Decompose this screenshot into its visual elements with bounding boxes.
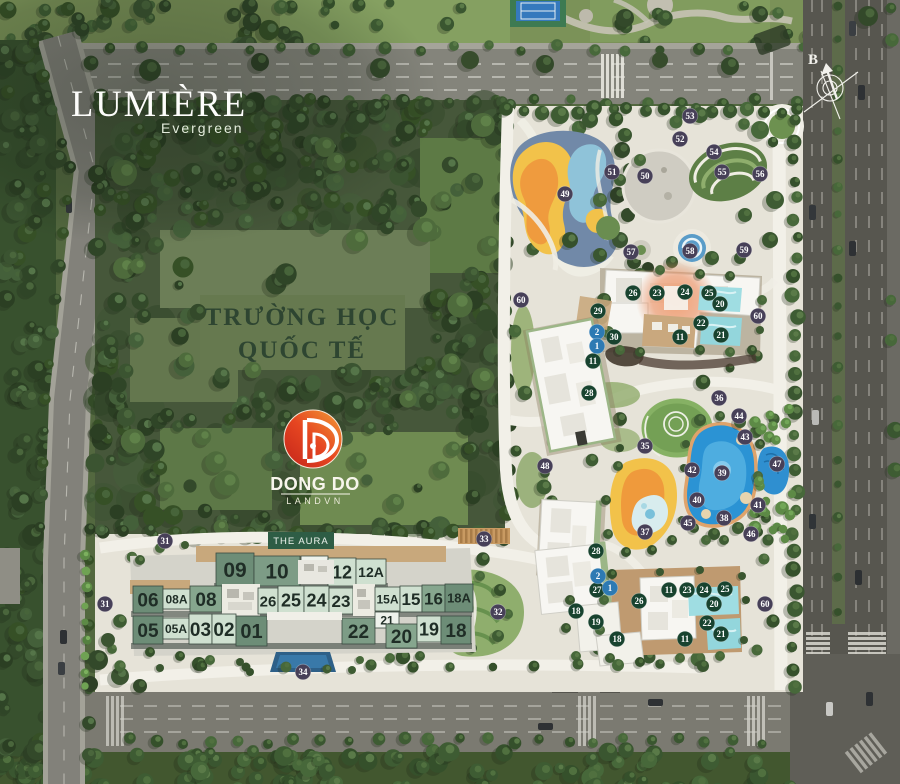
svg-text:21: 21	[717, 629, 727, 639]
svg-text:08: 08	[195, 590, 216, 611]
svg-text:39: 39	[718, 468, 728, 478]
svg-text:60: 60	[761, 599, 771, 609]
svg-text:15A: 15A	[376, 592, 398, 606]
svg-text:53: 53	[686, 111, 696, 121]
svg-text:48: 48	[541, 461, 551, 471]
svg-text:DONG DO: DONG DO	[270, 474, 360, 494]
svg-text:01: 01	[240, 621, 262, 643]
svg-text:11: 11	[589, 356, 598, 366]
svg-text:28: 28	[592, 546, 602, 556]
svg-text:1: 1	[595, 341, 600, 351]
svg-text:50: 50	[641, 171, 651, 181]
svg-text:Evergreen: Evergreen	[161, 120, 244, 136]
svg-text:40: 40	[693, 495, 703, 505]
svg-text:25: 25	[281, 590, 301, 610]
svg-text:19: 19	[592, 617, 602, 627]
svg-text:22: 22	[348, 622, 369, 643]
svg-text:LUMIÈRE: LUMIÈRE	[71, 83, 247, 124]
svg-text:18: 18	[613, 634, 623, 644]
svg-text:57: 57	[627, 247, 637, 257]
svg-text:31: 31	[161, 536, 171, 546]
svg-text:58: 58	[686, 246, 696, 256]
svg-text:60: 60	[754, 311, 764, 321]
svg-text:34: 34	[299, 667, 309, 677]
svg-text:30: 30	[610, 332, 620, 342]
svg-text:20: 20	[710, 599, 720, 609]
svg-text:B: B	[808, 52, 818, 68]
svg-text:23: 23	[683, 585, 693, 595]
svg-text:37: 37	[641, 527, 651, 537]
svg-text:2: 2	[595, 327, 600, 337]
svg-text:56: 56	[756, 169, 766, 179]
svg-text:18A: 18A	[447, 591, 471, 606]
svg-text:QUỐC TẾ: QUỐC TẾ	[238, 335, 366, 364]
svg-text:11: 11	[665, 585, 674, 595]
svg-text:LANDVN: LANDVN	[286, 496, 344, 506]
svg-text:47: 47	[773, 459, 783, 469]
svg-text:26: 26	[260, 593, 277, 610]
svg-text:51: 51	[608, 167, 618, 177]
svg-text:28: 28	[585, 388, 595, 398]
svg-text:25: 25	[705, 288, 715, 298]
svg-text:19: 19	[419, 619, 439, 639]
svg-text:12: 12	[332, 562, 352, 582]
svg-text:29: 29	[594, 306, 604, 316]
svg-text:42: 42	[688, 465, 698, 475]
svg-text:15: 15	[402, 590, 421, 609]
svg-text:18: 18	[572, 606, 582, 616]
svg-text:24: 24	[681, 287, 691, 297]
svg-text:49: 49	[561, 189, 571, 199]
svg-text:10: 10	[265, 561, 288, 584]
svg-text:16: 16	[424, 590, 443, 609]
svg-text:THE AURA: THE AURA	[273, 536, 329, 547]
svg-text:36: 36	[715, 393, 725, 403]
svg-text:22: 22	[697, 318, 707, 328]
svg-text:43: 43	[741, 432, 751, 442]
svg-text:02: 02	[213, 620, 234, 641]
svg-text:25: 25	[721, 584, 731, 594]
svg-text:32: 32	[494, 607, 504, 617]
svg-text:24: 24	[306, 590, 326, 610]
svg-text:26: 26	[635, 596, 645, 606]
svg-text:60: 60	[517, 295, 527, 305]
svg-text:05: 05	[137, 621, 159, 642]
svg-text:24: 24	[700, 585, 710, 595]
svg-text:05A: 05A	[165, 622, 187, 636]
svg-text:2: 2	[596, 571, 601, 581]
svg-text:22: 22	[703, 618, 713, 628]
svg-text:12A: 12A	[358, 564, 384, 580]
svg-text:41: 41	[754, 500, 764, 510]
svg-text:11: 11	[676, 332, 685, 342]
svg-text:59: 59	[740, 245, 750, 255]
svg-text:27: 27	[593, 585, 603, 595]
svg-text:52: 52	[676, 134, 686, 144]
svg-text:31: 31	[101, 599, 111, 609]
svg-text:23: 23	[332, 592, 351, 611]
svg-text:44: 44	[735, 411, 745, 421]
svg-text:33: 33	[480, 534, 490, 544]
svg-text:11: 11	[681, 634, 690, 644]
svg-text:35: 35	[641, 441, 651, 451]
svg-text:20: 20	[391, 627, 412, 648]
svg-text:38: 38	[720, 513, 730, 523]
svg-text:TRƯỜNG HỌC: TRƯỜNG HỌC	[205, 303, 400, 331]
svg-text:46: 46	[747, 529, 757, 539]
svg-text:26: 26	[629, 288, 639, 298]
svg-text:06: 06	[137, 590, 158, 611]
svg-text:20: 20	[716, 299, 726, 309]
svg-text:09: 09	[223, 559, 246, 582]
svg-text:08A: 08A	[165, 592, 187, 606]
svg-text:18: 18	[445, 621, 466, 642]
svg-text:1: 1	[608, 583, 613, 593]
svg-text:21: 21	[717, 330, 727, 340]
svg-text:23: 23	[653, 288, 663, 298]
svg-text:55: 55	[718, 167, 728, 177]
svg-text:54: 54	[710, 147, 720, 157]
svg-text:03: 03	[190, 620, 211, 641]
svg-text:45: 45	[684, 518, 694, 528]
